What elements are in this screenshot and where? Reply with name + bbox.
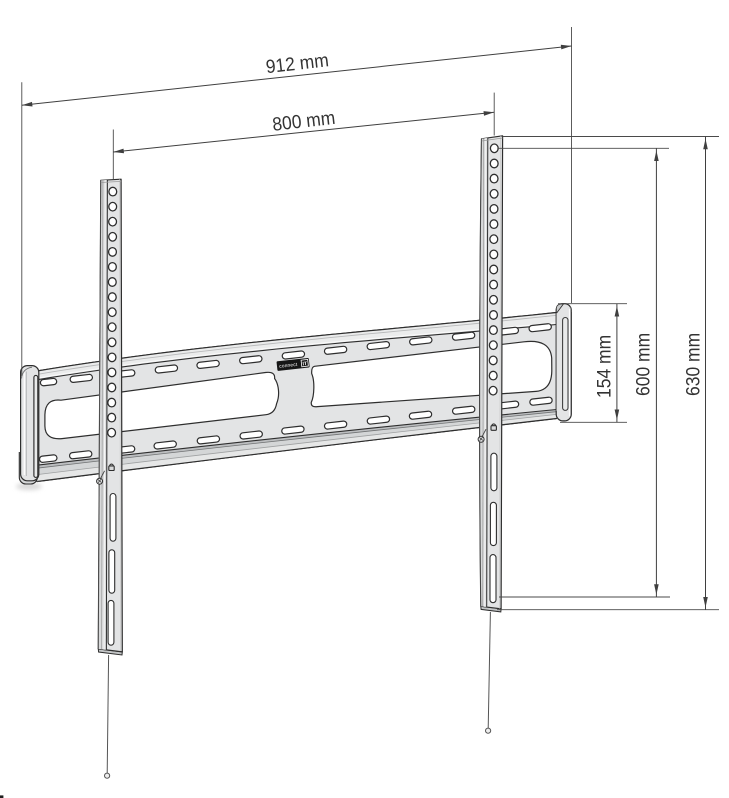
svg-text:154 mm: 154 mm	[593, 335, 615, 398]
svg-text:600 mm: 600 mm	[632, 333, 654, 396]
svg-text:630 mm: 630 mm	[682, 333, 704, 396]
svg-text:IT: IT	[302, 361, 307, 367]
